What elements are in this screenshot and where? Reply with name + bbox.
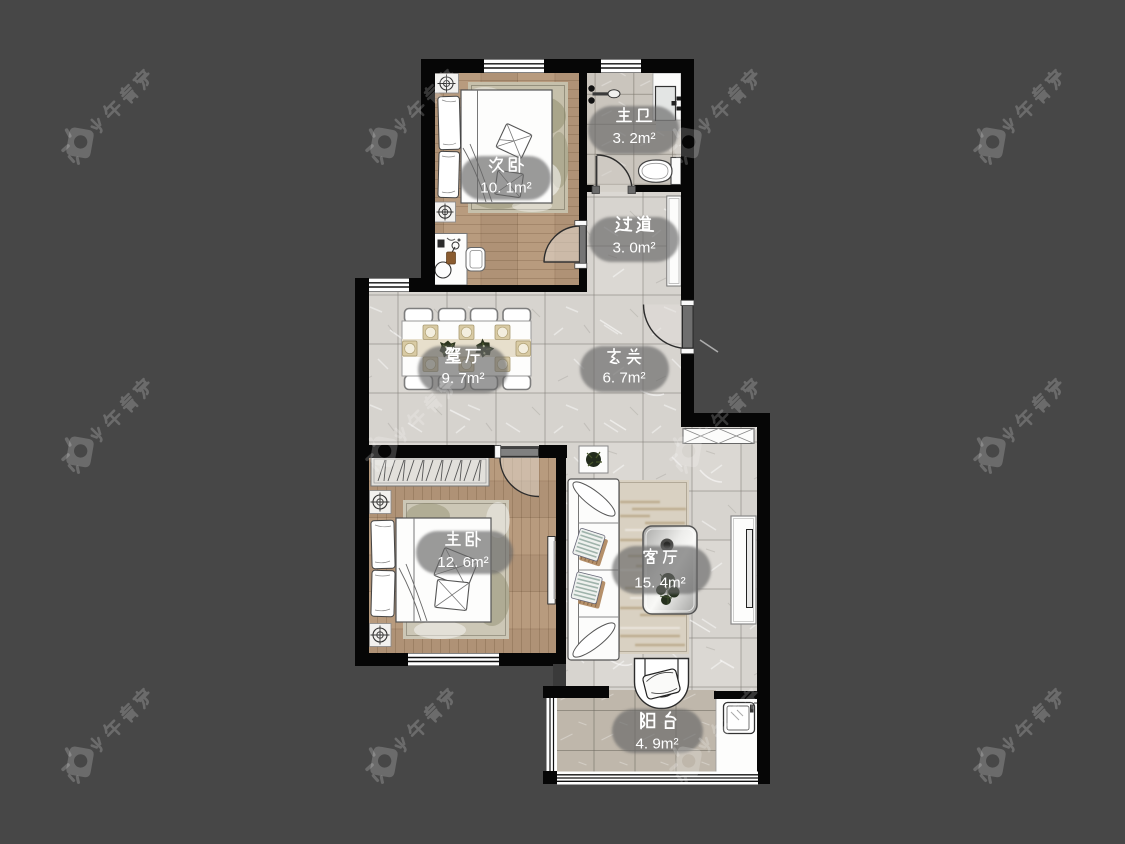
svg-text:6. 7m²: 6. 7m² — [602, 370, 645, 387]
svg-text:3. 2m²: 3. 2m² — [612, 130, 655, 147]
svg-text:3. 0m²: 3. 0m² — [612, 240, 655, 257]
svg-text:4. 9m²: 4. 9m² — [635, 736, 678, 753]
svg-text:12. 6m²: 12. 6m² — [437, 554, 489, 571]
svg-text:10. 1m²: 10. 1m² — [480, 180, 532, 197]
svg-text:15. 4m²: 15. 4m² — [634, 575, 686, 592]
